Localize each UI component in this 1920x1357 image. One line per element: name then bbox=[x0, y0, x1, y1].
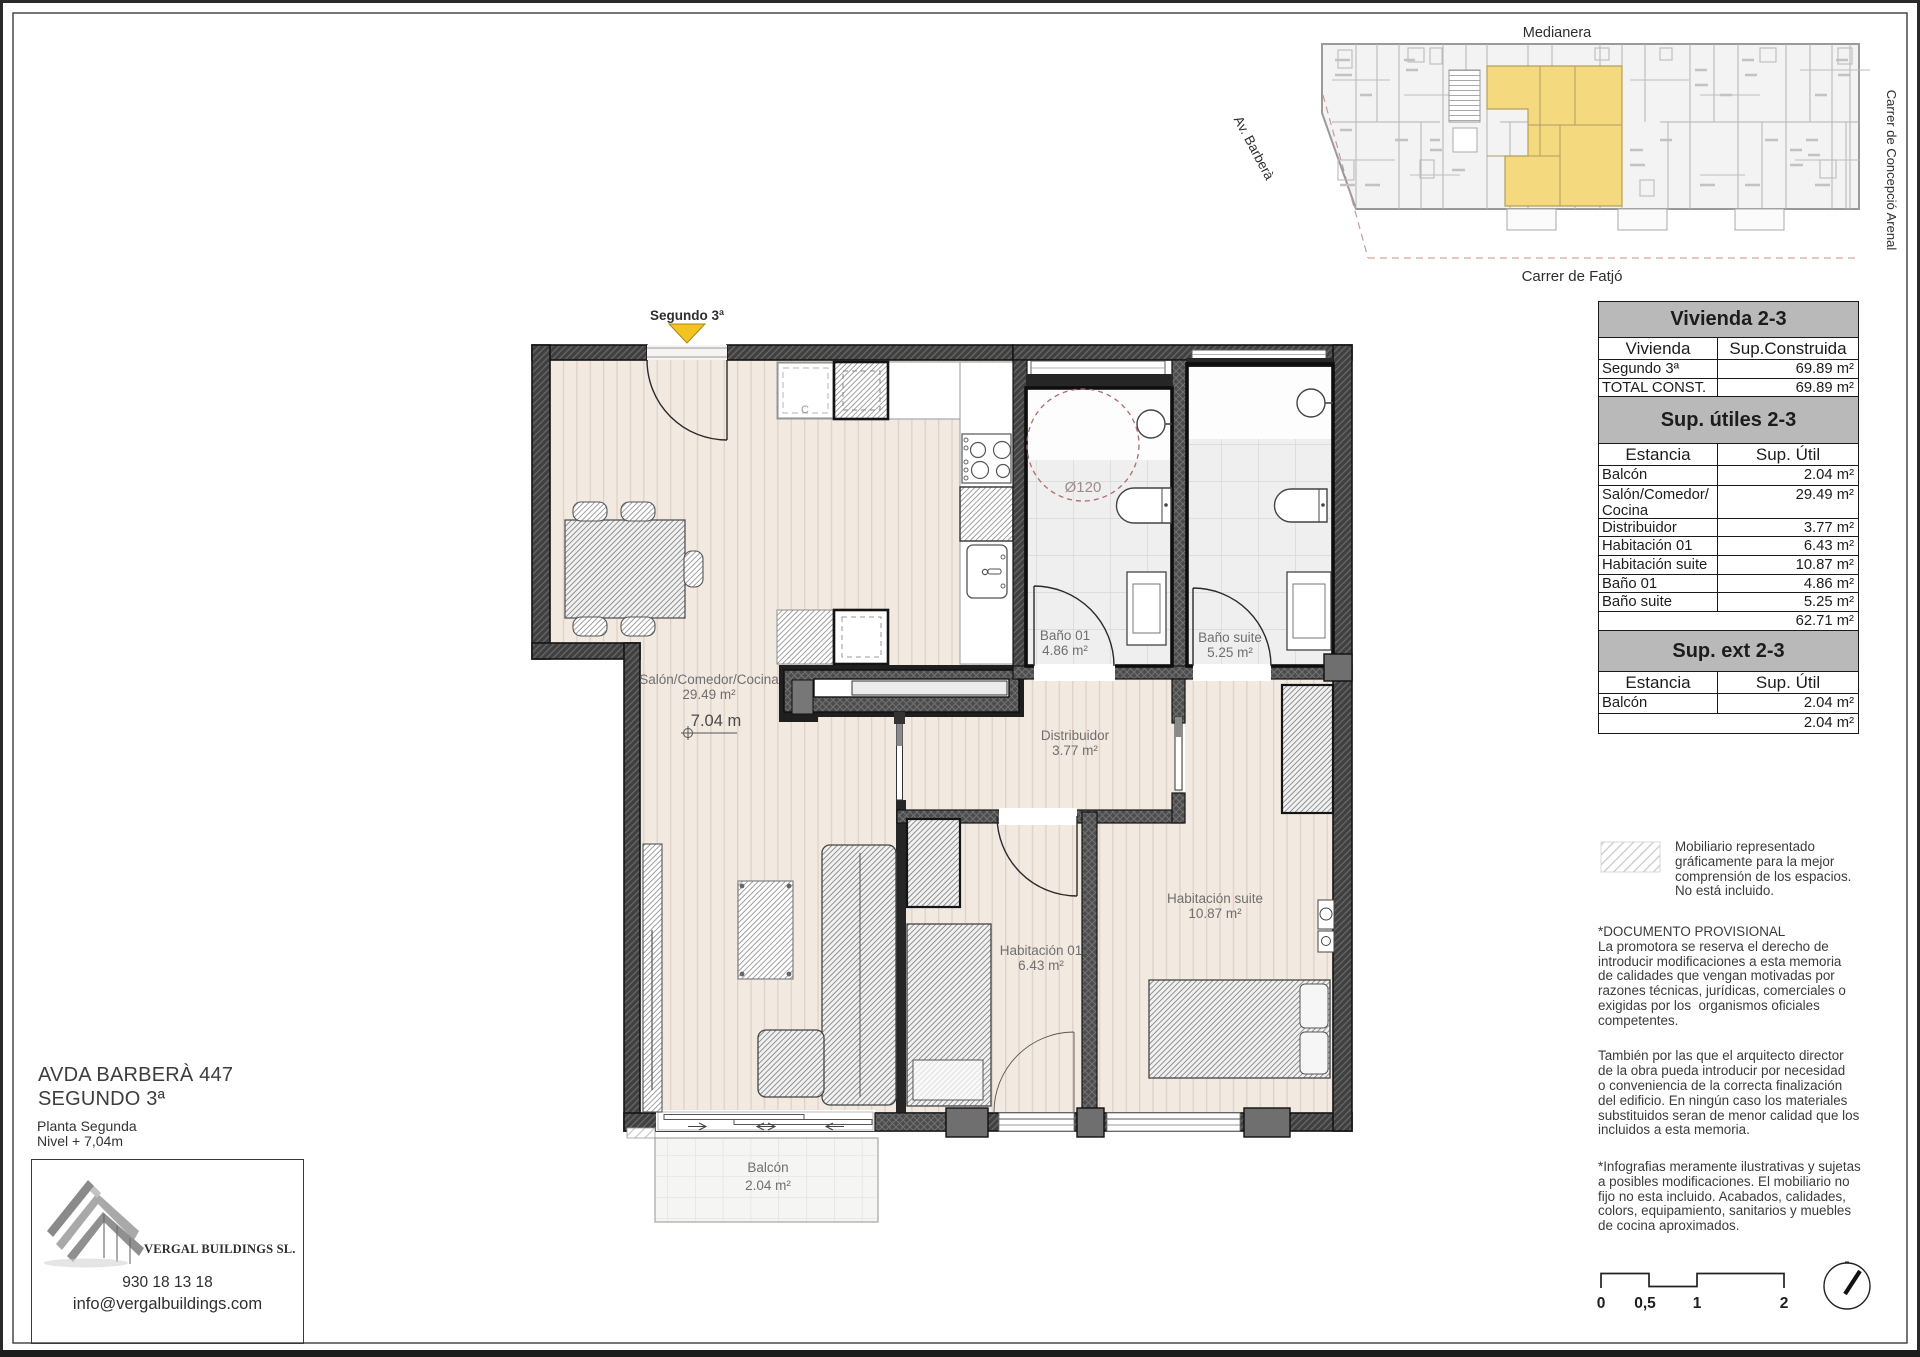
svg-text:Segundo 3ª: Segundo 3ª bbox=[650, 308, 724, 323]
svg-text:2.04 m²: 2.04 m² bbox=[745, 1178, 791, 1193]
svg-text:Balcón: Balcón bbox=[747, 1160, 788, 1175]
svg-text:Medianera: Medianera bbox=[1523, 25, 1592, 41]
svg-text:2: 2 bbox=[1780, 1295, 1789, 1312]
svg-text:Habitación 01: Habitación 01 bbox=[1000, 943, 1083, 958]
svg-text:6.43 m²: 6.43 m² bbox=[1018, 958, 1064, 973]
svg-text:Carrer de Fatjó: Carrer de Fatjó bbox=[1522, 268, 1623, 285]
svg-text:10.87 m²: 10.87 m² bbox=[1188, 906, 1242, 921]
svg-text:Habitación suite: Habitación suite bbox=[1167, 891, 1263, 906]
svg-text:Baño 01: Baño 01 bbox=[1040, 628, 1090, 643]
svg-text:3.77 m²: 3.77 m² bbox=[1052, 743, 1098, 758]
svg-text:Baño suite: Baño suite bbox=[1198, 630, 1262, 645]
svg-text:0,5: 0,5 bbox=[1634, 1295, 1656, 1312]
svg-text:5.25 m²: 5.25 m² bbox=[1207, 645, 1253, 660]
svg-text:Salón/Comedor/Cocina: Salón/Comedor/Cocina bbox=[639, 672, 779, 687]
svg-text:C: C bbox=[801, 404, 809, 416]
svg-text:29.49 m²: 29.49 m² bbox=[682, 687, 736, 702]
svg-text:0: 0 bbox=[1597, 1295, 1606, 1312]
svg-text:Carrer de Concepció Arenal: Carrer de Concepció Arenal bbox=[1884, 90, 1899, 251]
svg-text:7.04 m: 7.04 m bbox=[691, 712, 741, 730]
svg-text:1: 1 bbox=[1693, 1295, 1702, 1312]
svg-text:Ø120: Ø120 bbox=[1065, 479, 1102, 496]
svg-text:Distribuidor: Distribuidor bbox=[1041, 728, 1110, 743]
svg-text:4.86 m²: 4.86 m² bbox=[1042, 643, 1088, 658]
